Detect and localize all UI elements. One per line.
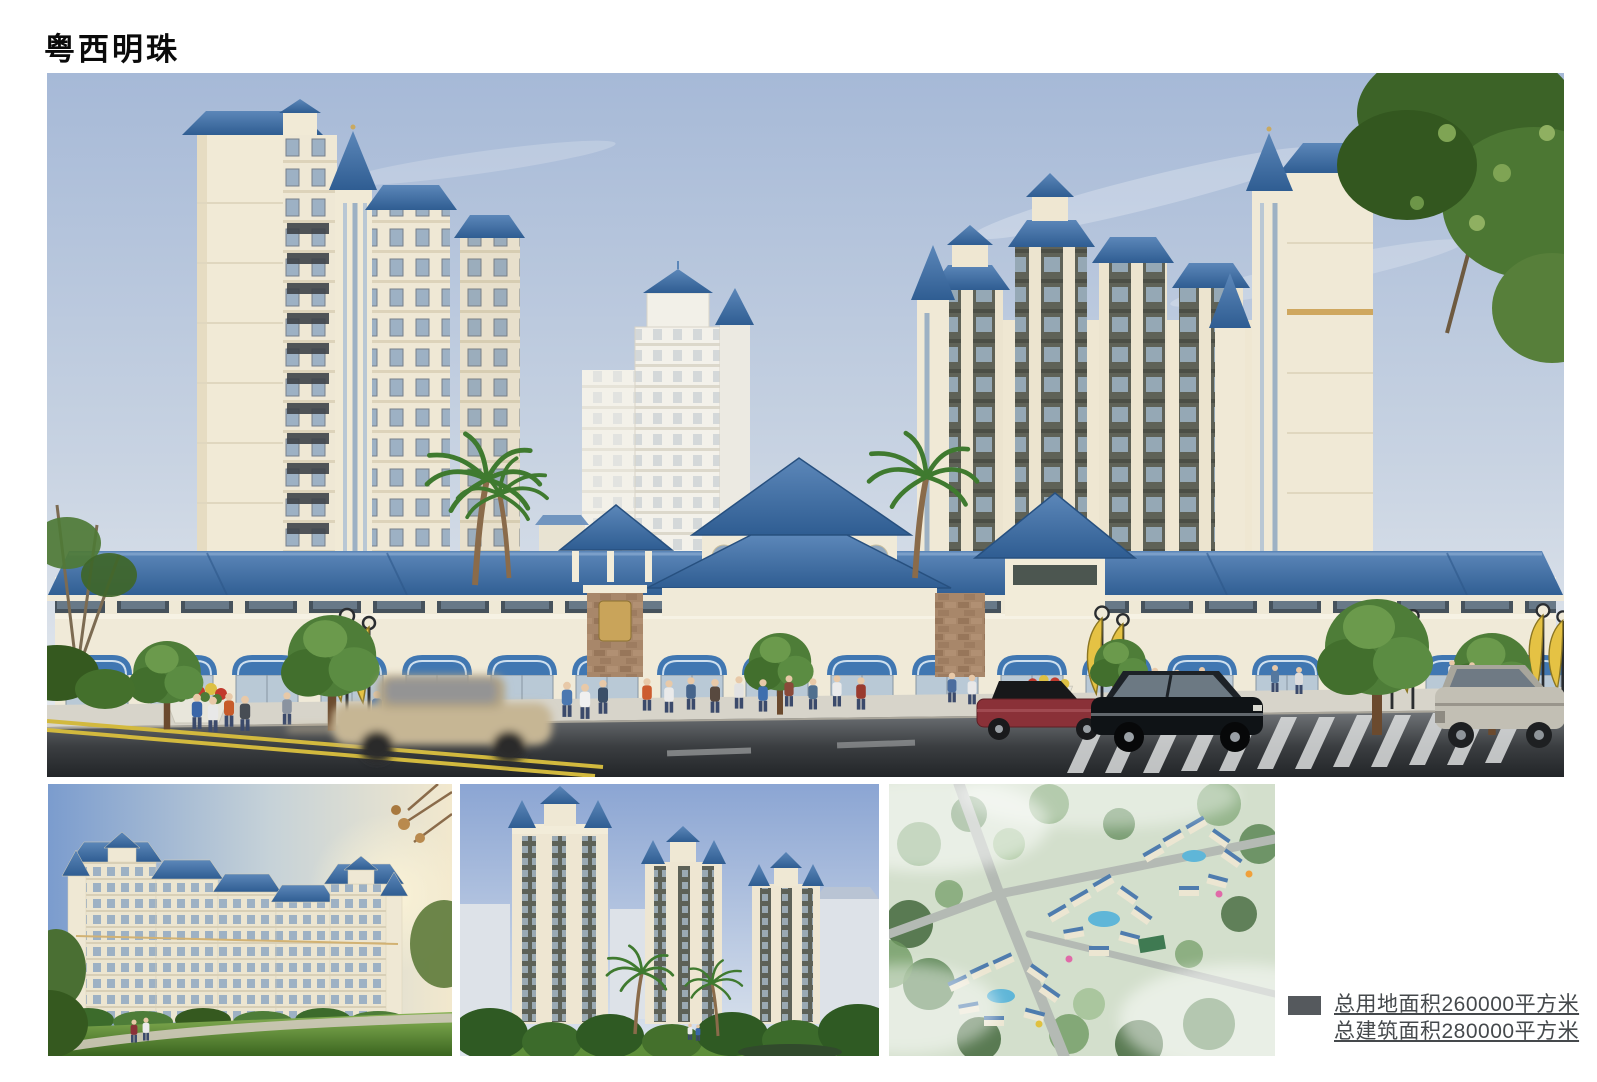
thumbnail-garden-view	[48, 784, 452, 1056]
thumbnail-aerial-view	[889, 784, 1275, 1056]
t2-tower-1	[508, 786, 612, 1024]
thumbnail-towers-view	[460, 784, 879, 1056]
main-rendering	[47, 73, 1564, 777]
main-rendering-canvas	[47, 73, 1564, 777]
page-title: 粤西明珠	[44, 24, 180, 69]
thumb1-canvas	[48, 784, 452, 1056]
stat-land-area: 总用地面积260000平方米	[1334, 991, 1579, 1018]
t2-tower-3	[748, 852, 824, 1024]
presentation-board: 粤西明珠	[0, 0, 1597, 1082]
stats-lines: 总用地面积260000平方米 总建筑面积280000平方米	[1334, 991, 1579, 1045]
stats-bullet	[1288, 996, 1321, 1015]
stat-floor-area: 总建筑面积280000平方米	[1334, 1018, 1579, 1045]
thumb3-canvas	[889, 784, 1275, 1056]
project-stats: 总用地面积260000平方米 总建筑面积280000平方米	[1288, 991, 1579, 1045]
thumb2-canvas	[460, 784, 879, 1056]
